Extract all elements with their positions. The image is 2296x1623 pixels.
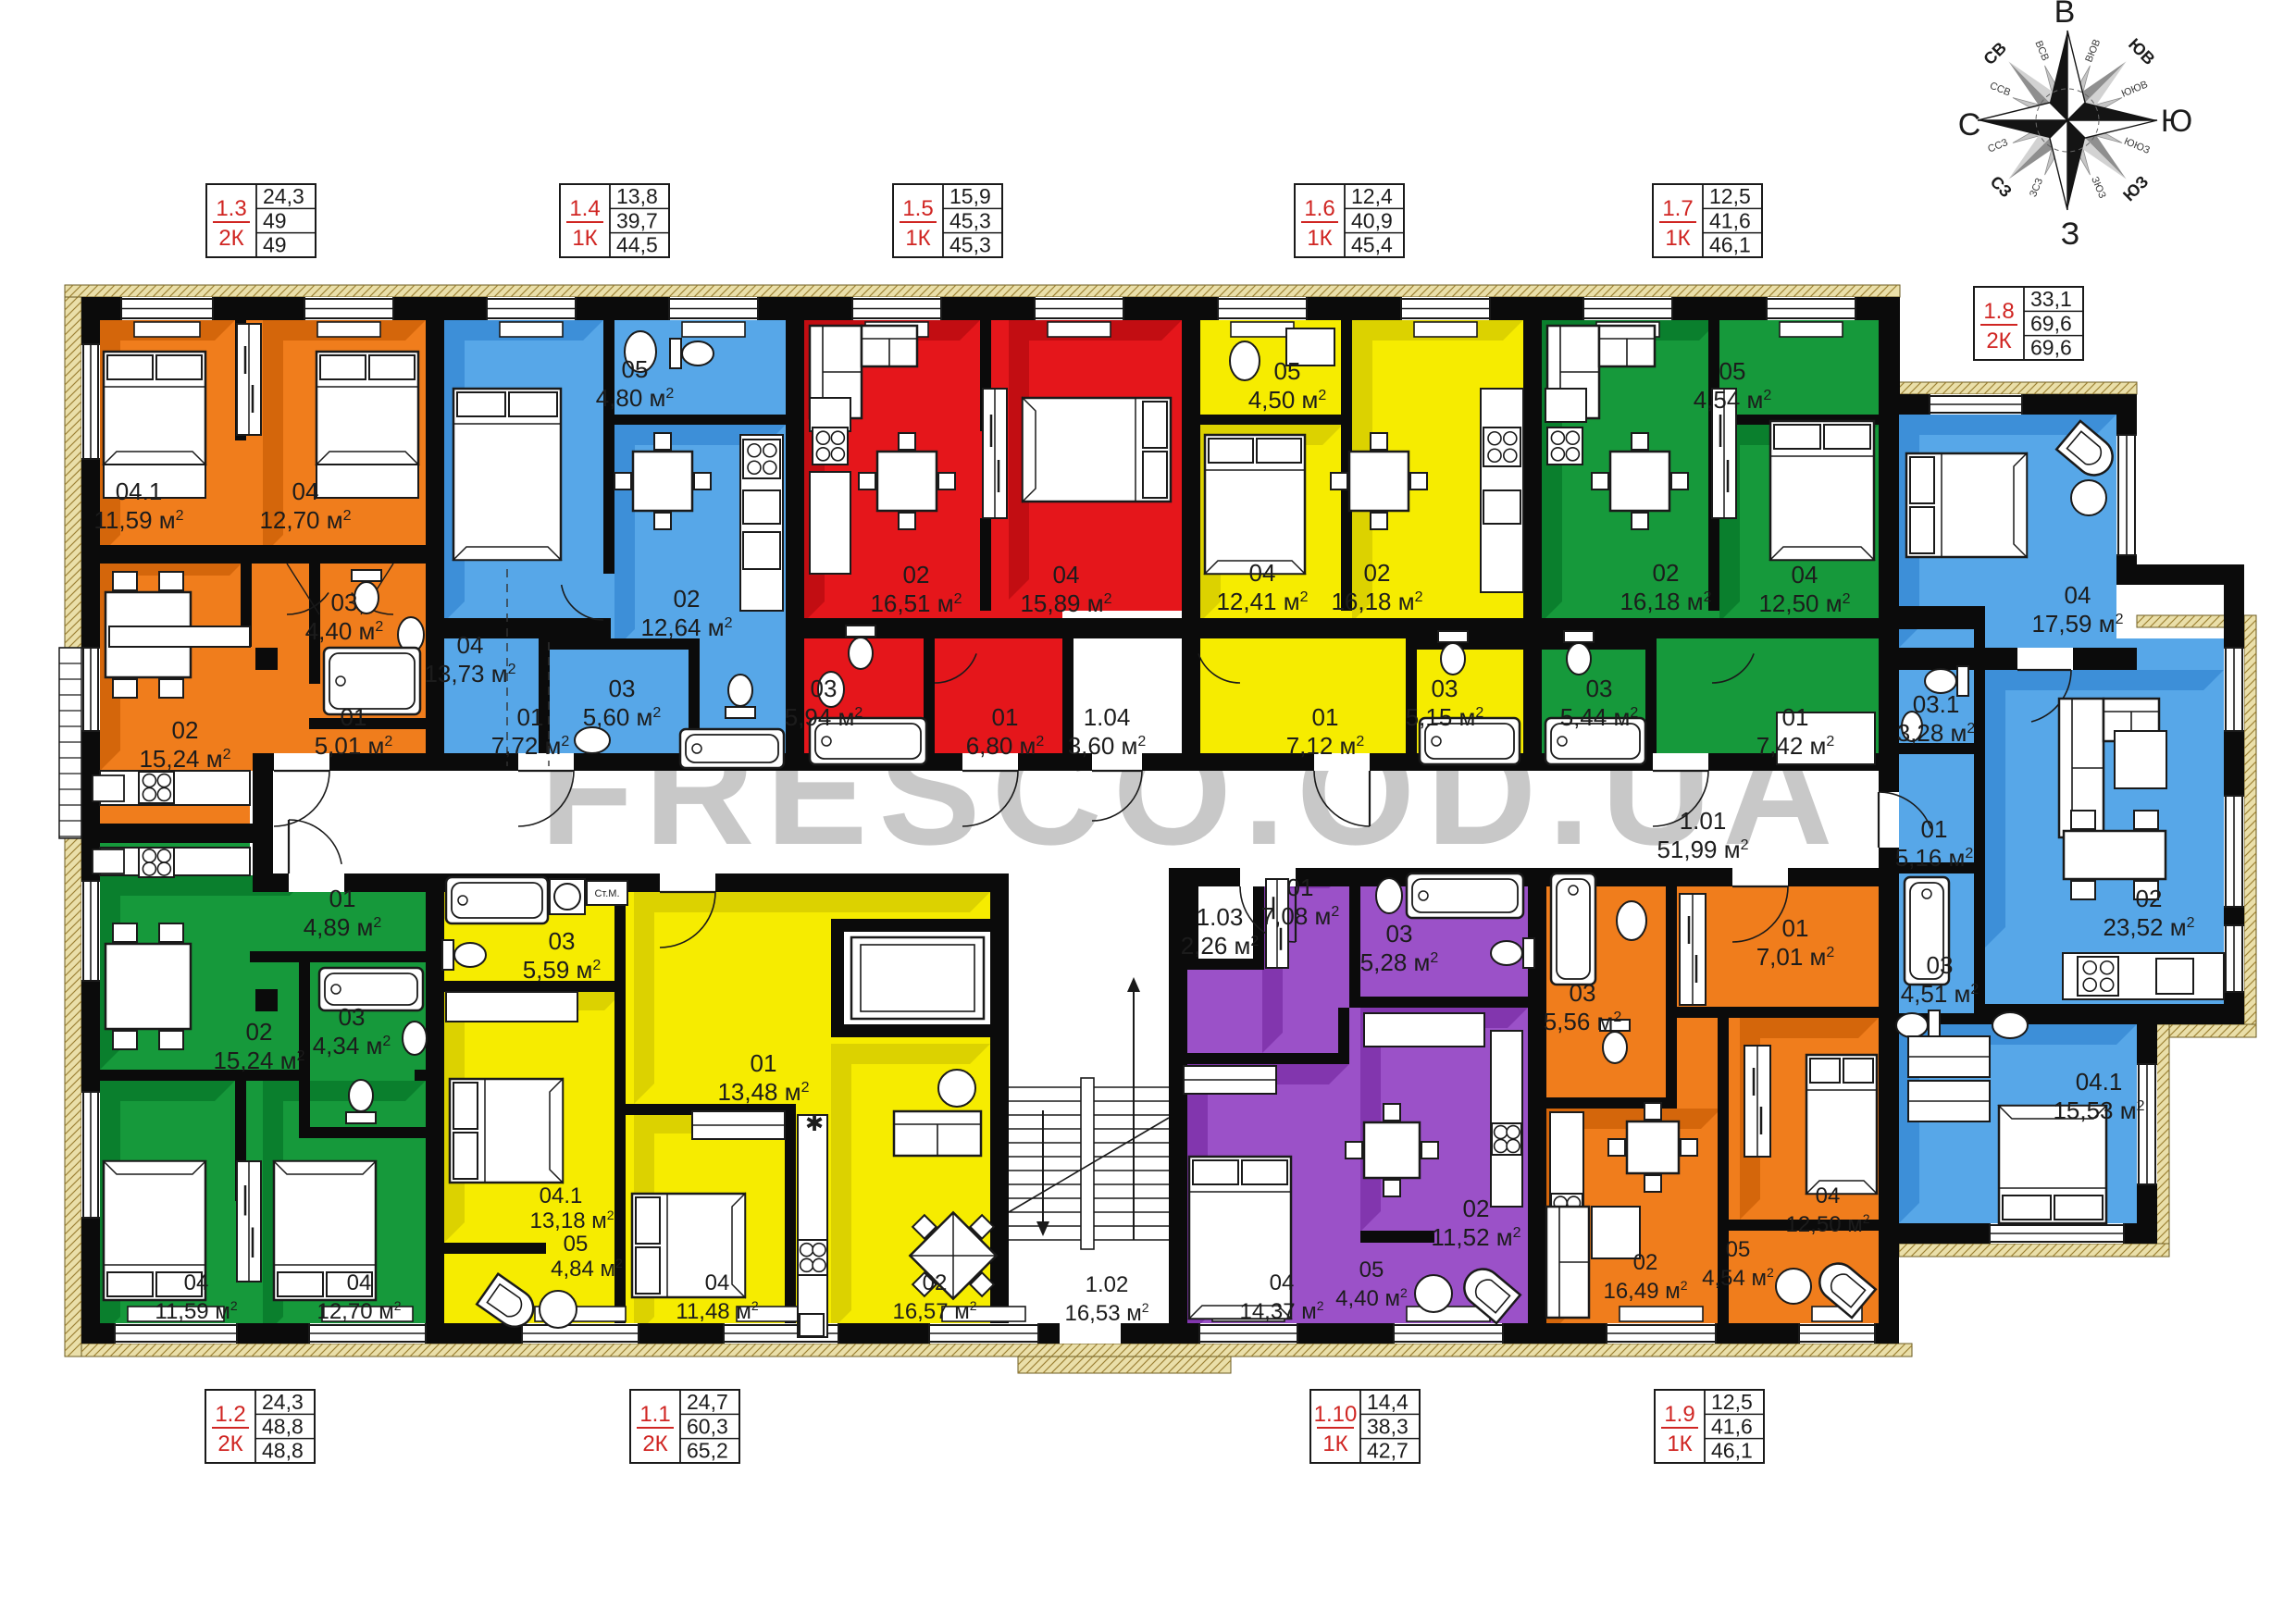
svg-text:38,3: 38,3 [1367,1414,1409,1438]
svg-text:04: 04 [1249,559,1276,587]
svg-text:03: 03 [1927,951,1954,979]
svg-text:12,70 м2: 12,70 м2 [259,506,351,534]
svg-text:7,08 м2: 7,08 м2 [1261,902,1340,930]
svg-text:1.7: 1.7 [1662,196,1693,221]
svg-text:4,40 м2: 4,40 м2 [1335,1285,1408,1311]
svg-text:4,34 м2: 4,34 м2 [313,1032,391,1059]
svg-text:16,51 м2: 16,51 м2 [870,589,962,617]
svg-text:1.3: 1.3 [216,196,246,221]
svg-text:01: 01 [329,885,356,912]
svg-text:15,24 м2: 15,24 м2 [139,745,230,773]
svg-text:5,28 м2: 5,28 м2 [1360,948,1439,976]
svg-text:1.4: 1.4 [569,196,600,221]
svg-text:02: 02 [1463,1195,1490,1222]
svg-text:13,18 м2: 13,18 м2 [529,1208,614,1233]
svg-text:14,37 м2: 14,37 м2 [1239,1298,1323,1324]
svg-text:01: 01 [1312,703,1339,731]
svg-text:1К: 1К [905,226,930,251]
svg-text:15,9: 15,9 [949,184,991,208]
svg-text:48,8: 48,8 [262,1439,304,1463]
svg-text:4,80 м2: 4,80 м2 [596,384,675,412]
svg-text:2К: 2К [218,226,243,251]
svg-text:24,3: 24,3 [262,1390,304,1414]
svg-text:01: 01 [341,703,367,731]
svg-text:17,59 м2: 17,59 м2 [2031,610,2123,638]
svg-text:1.03: 1.03 [1197,903,1244,931]
svg-text:4,54 м2: 4,54 м2 [1694,386,1772,414]
svg-text:04: 04 [2065,581,2091,609]
svg-text:1.5: 1.5 [902,196,933,221]
svg-text:42,7: 42,7 [1367,1439,1409,1463]
svg-text:04: 04 [457,631,484,659]
svg-text:05: 05 [622,355,649,383]
svg-text:6,80 м2: 6,80 м2 [966,732,1045,760]
svg-text:1.6: 1.6 [1304,196,1334,221]
svg-text:48,8: 48,8 [262,1414,304,1438]
svg-text:03: 03 [811,675,838,702]
svg-text:15,53 м2: 15,53 м2 [2053,1096,2144,1124]
svg-text:04: 04 [184,1270,209,1295]
svg-text:60,3: 60,3 [687,1414,728,1438]
svg-text:11,59 м2: 11,59 м2 [93,506,183,534]
svg-text:12,64 м2: 12,64 м2 [640,613,732,641]
svg-text:1.10: 1.10 [1314,1402,1358,1427]
svg-text:69,6: 69,6 [2030,336,2072,360]
svg-text:12,50 м2: 12,50 м2 [1785,1211,1869,1237]
svg-text:03.1: 03.1 [1913,690,1960,718]
svg-text:24,3: 24,3 [263,184,304,208]
svg-text:04: 04 [1816,1183,1841,1208]
svg-text:46,1: 46,1 [1711,1439,1753,1463]
svg-text:02: 02 [172,716,199,744]
svg-text:1.9: 1.9 [1664,1402,1694,1427]
svg-text:04: 04 [1270,1270,1295,1295]
svg-text:15,24 м2: 15,24 м2 [213,1047,304,1074]
svg-text:15,89 м2: 15,89 м2 [1020,589,1111,617]
svg-text:4,40 м2: 4,40 м2 [305,617,384,645]
svg-text:01: 01 [517,703,544,731]
svg-text:11,52 м2: 11,52 м2 [1431,1223,1520,1251]
svg-text:3,28 м2: 3,28 м2 [1897,719,1976,747]
svg-text:41,6: 41,6 [1709,208,1751,232]
svg-text:02: 02 [246,1018,273,1046]
svg-text:1.2: 1.2 [215,1402,245,1427]
svg-text:41,6: 41,6 [1711,1414,1753,1438]
svg-text:45,3: 45,3 [949,208,991,232]
svg-text:12,70 м2: 12,70 м2 [316,1298,401,1324]
svg-text:03: 03 [339,1003,366,1031]
svg-text:05: 05 [1359,1258,1384,1282]
svg-text:65,2: 65,2 [687,1439,728,1463]
svg-text:45,3: 45,3 [949,233,991,257]
svg-text:12,4: 12,4 [1351,184,1393,208]
svg-text:4,50 м2: 4,50 м2 [1248,386,1327,414]
svg-text:1К: 1К [1307,226,1332,251]
svg-text:12,5: 12,5 [1709,184,1751,208]
svg-text:03: 03 [1386,920,1413,948]
svg-text:7,42 м2: 7,42 м2 [1756,732,1835,760]
svg-text:02: 02 [903,561,930,588]
svg-text:03: 03 [1586,675,1613,702]
svg-text:49: 49 [263,208,287,232]
svg-text:03: 03 [609,675,636,702]
svg-text:4,89 м2: 4,89 м2 [304,913,382,941]
svg-text:40,9: 40,9 [1351,208,1393,232]
svg-text:7,72 м2: 7,72 м2 [491,732,570,760]
svg-text:5,56 м2: 5,56 м2 [1544,1008,1622,1035]
svg-text:01: 01 [1921,815,1948,843]
svg-text:01: 01 [1782,703,1809,731]
svg-text:5,15 м2: 5,15 м2 [1406,703,1484,731]
svg-text:5,16 м2: 5,16 м2 [1895,844,1974,872]
svg-text:05: 05 [564,1232,589,1257]
svg-text:С: С [1958,107,1981,142]
svg-text:23,52 м2: 23,52 м2 [2103,913,2194,941]
svg-text:5,01 м2: 5,01 м2 [315,732,393,760]
svg-text:05: 05 [1274,357,1301,385]
svg-text:1К: 1К [1667,1431,1692,1456]
svg-text:04.1: 04.1 [2076,1068,2123,1096]
svg-text:4,54 м2: 4,54 м2 [1702,1265,1774,1291]
svg-text:5,59 м2: 5,59 м2 [523,956,602,984]
svg-text:16,18 м2: 16,18 м2 [1331,588,1422,615]
svg-text:01: 01 [1287,873,1314,901]
svg-text:Ст.М.: Ст.М. [594,888,619,899]
svg-text:✱: ✱ [805,1111,824,1136]
svg-text:12,50 м2: 12,50 м2 [1758,589,1850,617]
svg-text:16,49 м2: 16,49 м2 [1603,1278,1687,1304]
svg-text:4,84 м2: 4,84 м2 [551,1256,623,1282]
svg-text:02: 02 [674,585,701,613]
svg-text:1К: 1К [572,226,597,251]
svg-text:03: 03 [549,927,576,955]
svg-text:44,5: 44,5 [616,233,658,257]
svg-text:1.1: 1.1 [639,1402,670,1427]
svg-text:2,26 м2: 2,26 м2 [1181,932,1260,960]
svg-text:04: 04 [1792,561,1818,588]
svg-text:1.04: 1.04 [1084,703,1131,731]
svg-text:45,4: 45,4 [1351,233,1393,257]
svg-text:05: 05 [1726,1237,1751,1262]
svg-text:2К: 2К [642,1431,667,1456]
svg-text:02: 02 [923,1270,948,1295]
svg-text:69,6: 69,6 [2030,311,2072,335]
svg-text:11,59 м2: 11,59 м2 [155,1298,237,1324]
svg-text:02: 02 [1633,1250,1658,1275]
svg-text:5,94 м2: 5,94 м2 [785,703,863,731]
svg-text:04: 04 [1053,561,1080,588]
svg-text:12,41 м2: 12,41 м2 [1216,588,1308,615]
svg-text:13,48 м2: 13,48 м2 [717,1078,809,1106]
svg-text:1К: 1К [1665,226,1690,251]
svg-text:05: 05 [1719,357,1746,385]
svg-text:13,73 м2: 13,73 м2 [424,660,515,688]
svg-text:12,5: 12,5 [1711,1390,1753,1414]
svg-text:49: 49 [263,233,287,257]
svg-text:2К: 2К [1986,328,2011,353]
svg-text:Ю: Ю [2161,104,2192,139]
svg-text:7,01 м2: 7,01 м2 [1756,943,1835,971]
svg-text:1.02: 1.02 [1086,1272,1129,1297]
svg-text:1.8: 1.8 [1983,299,2014,324]
svg-text:02: 02 [1653,559,1680,587]
svg-text:03: 03 [1432,675,1458,702]
svg-text:03: 03 [1570,979,1596,1007]
svg-text:39,7: 39,7 [616,208,658,232]
svg-text:16,57 м2: 16,57 м2 [892,1298,976,1324]
svg-text:04: 04 [292,477,319,505]
svg-text:04: 04 [347,1270,372,1295]
svg-text:16,53 м2: 16,53 м2 [1064,1300,1148,1326]
svg-text:5,44 м2: 5,44 м2 [1560,703,1639,731]
svg-text:16,18 м2: 16,18 м2 [1620,588,1711,615]
svg-text:4,51 м2: 4,51 м2 [1901,980,1980,1008]
svg-text:1.01: 1.01 [1680,807,1727,835]
svg-text:2К: 2К [217,1431,242,1456]
svg-text:3,60 м2: 3,60 м2 [1068,732,1147,760]
svg-text:51,99 м2: 51,99 м2 [1657,836,1748,863]
svg-text:13,8: 13,8 [616,184,658,208]
svg-text:1К: 1К [1322,1431,1347,1456]
svg-text:04.1: 04.1 [540,1183,583,1208]
svg-text:02: 02 [2136,885,2163,912]
svg-text:В: В [2054,0,2076,30]
svg-text:01: 01 [751,1049,777,1077]
svg-text:5,60 м2: 5,60 м2 [583,703,662,731]
svg-text:02: 02 [1364,559,1391,587]
svg-text:14,4: 14,4 [1367,1390,1409,1414]
svg-text:04.1: 04.1 [116,477,163,505]
svg-text:11,48 м2: 11,48 м2 [676,1298,758,1324]
svg-text:З: З [2061,217,2080,252]
svg-text:01: 01 [1782,914,1809,942]
svg-text:01: 01 [992,703,1019,731]
svg-text:33,1: 33,1 [2030,287,2072,311]
svg-text:24,7: 24,7 [687,1390,728,1414]
svg-text:46,1: 46,1 [1709,233,1751,257]
svg-text:03: 03 [331,588,358,616]
svg-text:04: 04 [705,1270,730,1295]
svg-text:7,12 м2: 7,12 м2 [1286,732,1365,760]
